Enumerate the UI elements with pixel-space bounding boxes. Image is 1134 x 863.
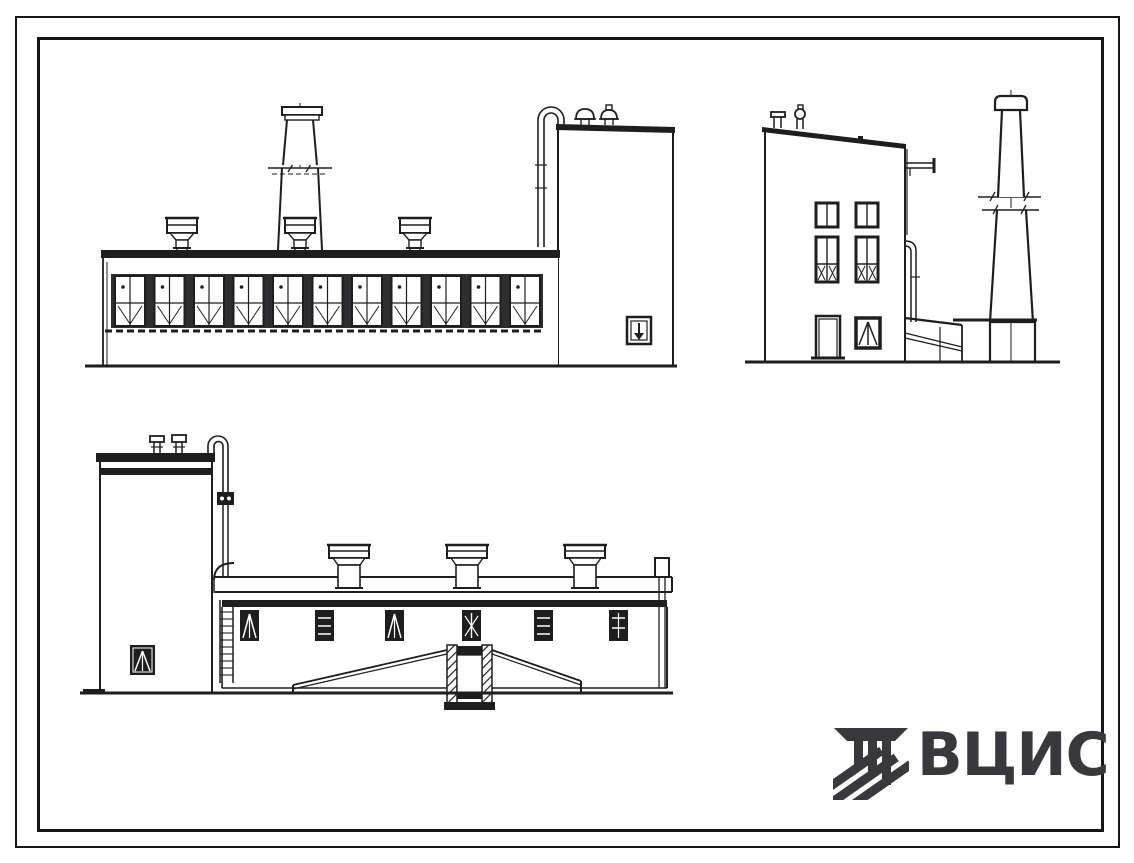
roof-deflector-icon xyxy=(563,545,607,588)
vcis-emblem-icon xyxy=(833,728,909,800)
triangle-window xyxy=(856,318,880,348)
middle-window xyxy=(816,237,838,282)
wall-pipe xyxy=(905,149,934,322)
front-main-building xyxy=(101,250,560,366)
annex-roof-vent-icon xyxy=(574,109,596,125)
rear-tower xyxy=(96,435,215,693)
side-elevation-drawing xyxy=(740,85,1070,375)
annex-roof-vent-icon xyxy=(599,105,619,125)
roof-deflector-icon xyxy=(445,545,489,588)
roof-deflector-icon xyxy=(398,218,432,251)
wall-window xyxy=(385,610,404,641)
roof-pipe-icon xyxy=(150,436,164,453)
roof-deflector-icon xyxy=(327,545,371,588)
roof-vent-icon xyxy=(771,112,785,128)
side-chimney xyxy=(953,90,1041,362)
wall-window xyxy=(534,610,553,641)
logo-text: ВЦИС xyxy=(917,722,1109,788)
middle-window xyxy=(856,237,878,282)
wall-window xyxy=(609,610,628,641)
down-arrow-sign xyxy=(627,317,651,344)
side-building xyxy=(762,105,906,362)
wall-window xyxy=(240,610,259,641)
front-annex xyxy=(556,105,675,366)
upper-window xyxy=(816,203,838,227)
roof-vent-icon xyxy=(795,105,805,129)
upper-window xyxy=(856,203,878,227)
tower-window xyxy=(130,645,155,675)
side-door xyxy=(811,316,845,358)
front-elevation-drawing xyxy=(85,95,685,380)
wall-window xyxy=(315,610,334,641)
vcis-logo: ВЦИС xyxy=(833,722,1109,800)
flue-duct xyxy=(905,318,962,362)
rear-main-building xyxy=(215,558,672,693)
front-window-row xyxy=(111,274,543,328)
roof-deflector-icon xyxy=(165,218,199,251)
roof-pipe-icon xyxy=(172,435,186,453)
rear-elevation-drawing xyxy=(75,430,685,720)
wall-window xyxy=(462,610,481,641)
